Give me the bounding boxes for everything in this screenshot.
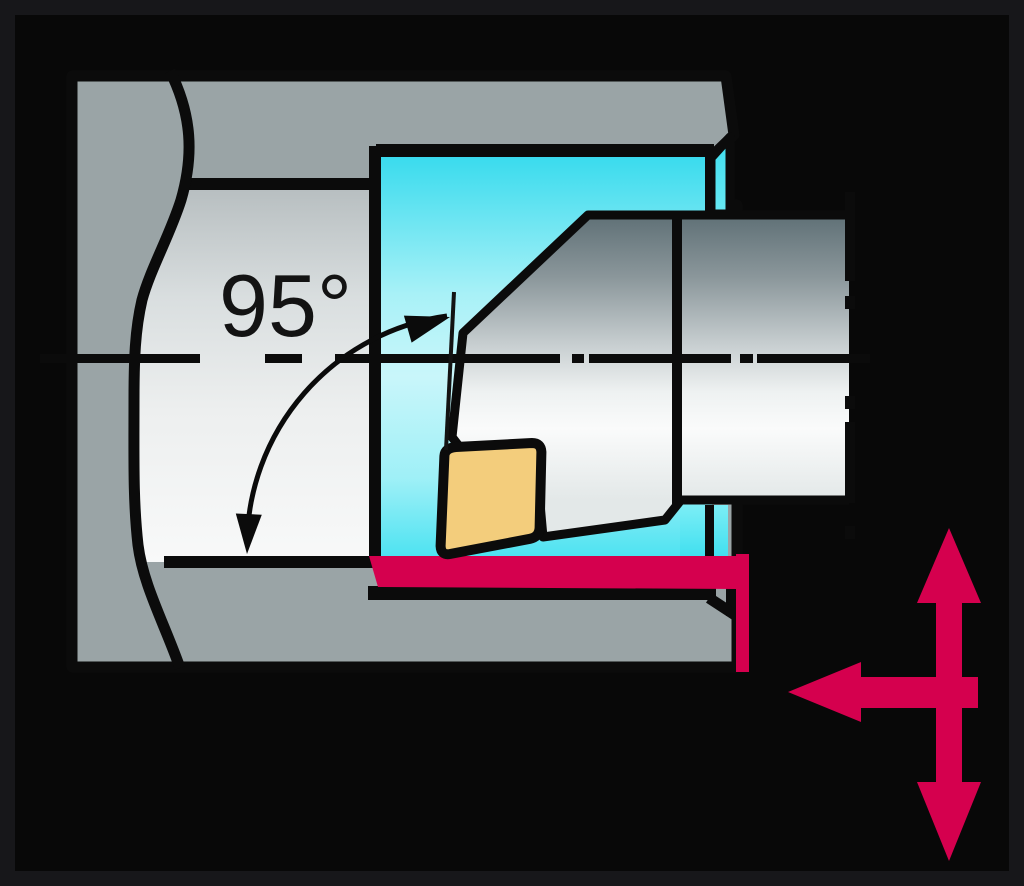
illustration-canvas: 95° xyxy=(0,0,1024,886)
bore-top-line xyxy=(376,144,714,157)
indexable-insert xyxy=(441,443,542,554)
allowance-bore-layer xyxy=(369,556,736,589)
centerline-dash xyxy=(335,354,560,363)
allowance-face-layer xyxy=(736,554,749,672)
centerline-dash xyxy=(589,354,731,363)
break-dot xyxy=(845,396,855,409)
face-edge-line-upper xyxy=(705,151,714,214)
centerline-dash xyxy=(40,354,200,363)
entering-angle-label: 95° xyxy=(219,256,352,355)
bore-shoulder-line xyxy=(369,146,381,560)
centerline-dot xyxy=(572,354,584,363)
centerline-dash xyxy=(757,354,870,363)
centerline xyxy=(40,354,870,363)
break-dot xyxy=(845,526,855,539)
boring-tool-diagram: 95° xyxy=(0,0,1024,886)
break-dot xyxy=(845,296,855,309)
break-dash xyxy=(845,192,855,281)
break-dash xyxy=(845,422,855,503)
centerline-dot xyxy=(740,354,753,363)
bore-lower-mouth xyxy=(680,505,728,558)
centerline-dot xyxy=(265,354,302,363)
pilot-bore-top-line xyxy=(184,178,381,190)
pilot-bore-bottom-line xyxy=(164,556,381,568)
face-edge-line-lower xyxy=(705,505,714,558)
